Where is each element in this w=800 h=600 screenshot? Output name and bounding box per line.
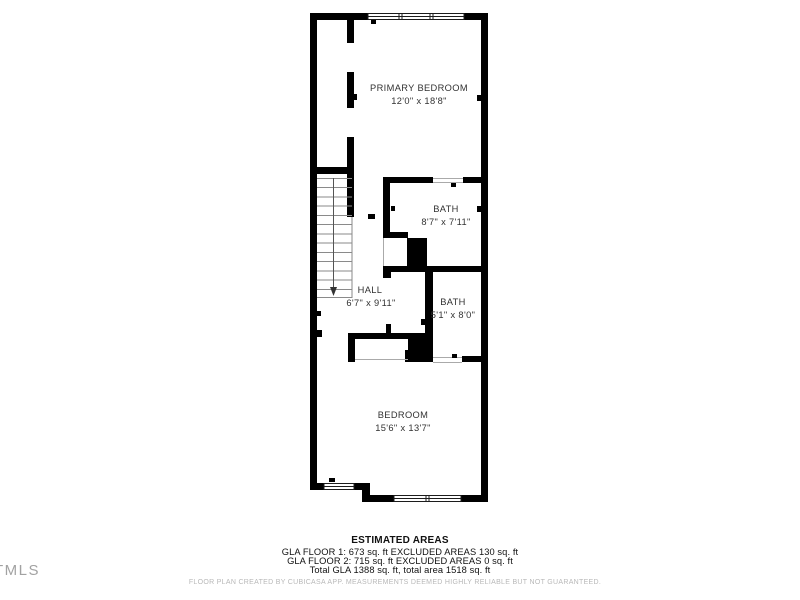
room-label-bedroom: BEDROOM — [378, 410, 429, 420]
floor-plan-drawing: PRIMARY BEDROOM 12'0" x 18'8" BATH 8'7" … — [0, 0, 800, 600]
tmls-watermark: TMLS — [0, 562, 40, 579]
estimated-areas-block: ESTIMATED AREAS GLA FLOOR 1: 673 sq. ft … — [0, 535, 800, 574]
room-label-hall: HALL — [358, 285, 383, 295]
room-dims-bath-lower: 5'1" x 8'0" — [431, 310, 476, 320]
room-dims-primary-bedroom: 12'0" x 18'8" — [391, 96, 447, 106]
room-dims-bath-upper: 8'7" x 7'11" — [421, 217, 470, 227]
floor-plan-page: PRIMARY BEDROOM 12'0" x 18'8" BATH 8'7" … — [0, 0, 800, 600]
estimated-areas-title: ESTIMATED AREAS — [0, 535, 800, 546]
room-dims-bedroom: 15'6" x 13'7" — [375, 423, 431, 433]
bottom-left-window — [324, 478, 354, 490]
room-dims-hall: 6'7" x 9'11" — [346, 298, 395, 308]
top-window — [368, 14, 464, 25]
room-label-primary-bedroom: PRIMARY BEDROOM — [370, 83, 468, 93]
room-label-bath-lower: BATH — [440, 297, 466, 307]
bottom-window — [394, 496, 461, 502]
gla-total-line: Total GLA 1388 sq. ft, total area 1518 s… — [0, 566, 800, 575]
stairs-down-arrow-icon — [330, 287, 337, 296]
staircase — [317, 178, 352, 298]
room-label-bath-upper: BATH — [433, 204, 459, 214]
disclaimer-text: FLOOR PLAN CREATED BY CUBICASA APP. MEAS… — [0, 579, 790, 586]
